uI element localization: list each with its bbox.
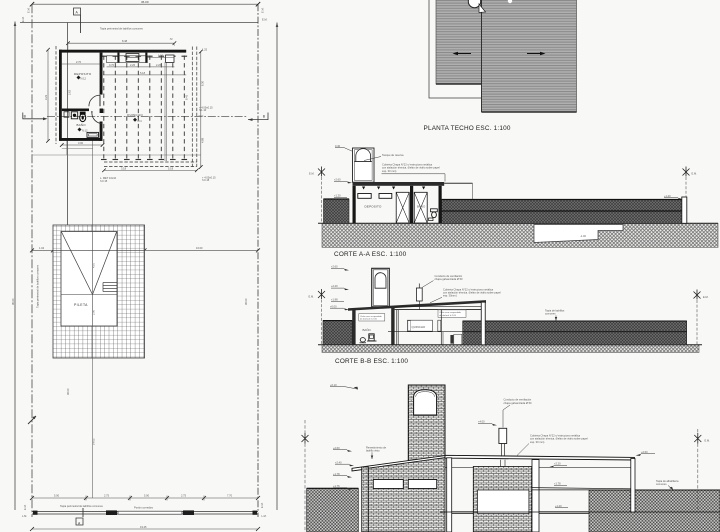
svg-text:E.M.: E.M. bbox=[692, 172, 698, 176]
svg-text:QUINCHO: QUINCHO bbox=[127, 113, 143, 117]
svg-text:Cielo raso suspendido: Cielo raso suspendido bbox=[439, 311, 461, 314]
svg-text:esp. 30 mm): esp. 30 mm) bbox=[530, 440, 545, 444]
svg-text:Portón corredizo: Portón corredizo bbox=[134, 506, 154, 510]
svg-text:-1.40: -1.40 bbox=[580, 234, 586, 238]
svg-text:3.00: 3.00 bbox=[78, 141, 84, 145]
svg-text:2.26: 2.26 bbox=[156, 63, 162, 67]
svg-text:h:1.10: h:1.10 bbox=[199, 108, 207, 112]
svg-text:N:12: N:12 bbox=[81, 77, 87, 81]
svg-text:E.M.: E.M. bbox=[27, 7, 31, 13]
svg-text:L.M.: L.M. bbox=[262, 514, 267, 518]
svg-text:N:4: N:4 bbox=[138, 119, 143, 123]
svg-text:E.M.: E.M. bbox=[309, 295, 315, 299]
svg-text:PILETA: PILETA bbox=[74, 303, 88, 307]
svg-text:4.10: 4.10 bbox=[92, 262, 96, 268]
svg-text:CORTE A-A ESC. 1:100: CORTE A-A ESC. 1:100 bbox=[334, 251, 407, 258]
svg-text:6.30: 6.30 bbox=[201, 80, 205, 86]
svg-text:esp. 30mm): esp. 30mm) bbox=[443, 294, 457, 298]
svg-text:Tapia perimetral de ladrillos: Tapia perimetral de ladrillos comunes bbox=[100, 27, 144, 31]
svg-text:3.23: 3.23 bbox=[44, 94, 48, 100]
svg-text:+2.60: +2.60 bbox=[334, 178, 341, 182]
svg-text:2.62: 2.62 bbox=[68, 89, 72, 95]
svg-text:+2.40: +2.40 bbox=[335, 460, 342, 464]
svg-text:Tapia perimetral de ladrillos: Tapia perimetral de ladrillos comunes bbox=[60, 504, 104, 508]
svg-text:0.40: 0.40 bbox=[335, 144, 341, 148]
svg-text:E.M.: E.M. bbox=[705, 439, 711, 443]
svg-text:E.M.: E.M. bbox=[260, 502, 264, 508]
svg-text:DEPOSITO: DEPOSITO bbox=[74, 72, 92, 76]
svg-text:+1.20: +1.20 bbox=[664, 194, 671, 198]
svg-text:1.00: 1.00 bbox=[158, 53, 164, 57]
svg-text:E.M.: E.M. bbox=[23, 504, 27, 510]
svg-text:Tanque de reserva: Tanque de reserva bbox=[382, 153, 404, 157]
svg-text:+1.78: +1.78 bbox=[554, 482, 561, 486]
svg-text:BAÑO: BAÑO bbox=[417, 204, 426, 209]
svg-text:+2.60: +2.60 bbox=[333, 446, 340, 450]
svg-text:36.00: 36.00 bbox=[141, 0, 149, 4]
svg-text:+2.60: +2.60 bbox=[641, 450, 648, 454]
svg-text:chapa galvanizada Ø 50: chapa galvanizada Ø 50 bbox=[435, 277, 464, 281]
svg-text:chapa galvanizada Ø 50: chapa galvanizada Ø 50 bbox=[504, 401, 533, 405]
svg-text:14.05: 14.05 bbox=[92, 438, 96, 445]
svg-text:.72: .72 bbox=[169, 37, 173, 41]
svg-text:de durlock h:2.05: de durlock h:2.05 bbox=[360, 318, 378, 321]
svg-text:comunes: comunes bbox=[656, 483, 667, 486]
svg-text:4.88: 4.88 bbox=[201, 137, 205, 143]
svg-text:5.00: 5.00 bbox=[54, 494, 60, 498]
svg-text:E.M.: E.M. bbox=[703, 295, 709, 299]
svg-text:E.M.: E.M. bbox=[261, 7, 265, 13]
svg-text:7.70: 7.70 bbox=[227, 494, 233, 498]
svg-text:2.75: 2.75 bbox=[104, 494, 110, 498]
svg-text:esp. 30 mm): esp. 30 mm) bbox=[382, 169, 397, 173]
svg-text:+2.60: +2.60 bbox=[331, 265, 338, 269]
svg-text:CORTE B-B ESC. 1:100: CORTE B-B ESC. 1:100 bbox=[335, 358, 408, 365]
svg-text:+1.76: +1.76 bbox=[333, 484, 340, 488]
svg-text:5.18: 5.18 bbox=[140, 71, 146, 75]
svg-text:ladrillo visto: ladrillo visto bbox=[366, 449, 380, 453]
svg-text:2.75: 2.75 bbox=[181, 494, 187, 498]
svg-text:QUINCHO: QUINCHO bbox=[412, 325, 426, 329]
svg-text:E.M.: E.M. bbox=[262, 18, 268, 22]
svg-text:DEPOSITO: DEPOSITO bbox=[365, 205, 383, 209]
svg-text:2.00: 2.00 bbox=[92, 309, 96, 315]
svg-text:+1.20: +1.20 bbox=[555, 504, 562, 508]
svg-text:L.M.: L.M. bbox=[22, 514, 27, 518]
svg-text:1.04: 1.04 bbox=[39, 246, 45, 250]
svg-text:5.00: 5.00 bbox=[144, 494, 150, 498]
svg-text:+1.78: +1.78 bbox=[333, 472, 340, 476]
svg-text:0.70: 0.70 bbox=[109, 63, 115, 67]
svg-text:+0.00: +0.00 bbox=[330, 304, 337, 308]
svg-text:Cielo raso suspendido: Cielo raso suspendido bbox=[360, 315, 382, 318]
svg-text:+1.20: +1.20 bbox=[334, 194, 341, 198]
svg-text:E.M.: E.M. bbox=[21, 16, 25, 22]
svg-text:+6.10: +6.10 bbox=[330, 383, 337, 387]
svg-text:36.00: 36.00 bbox=[11, 298, 15, 305]
svg-text:5.18: 5.18 bbox=[168, 166, 174, 170]
svg-text:N:12: N:12 bbox=[82, 129, 88, 133]
svg-text:+2.20: +2.20 bbox=[554, 462, 561, 466]
svg-text:de durlock h:2.05: de durlock h:2.05 bbox=[439, 314, 457, 317]
svg-text:+2.20: +2.20 bbox=[331, 284, 338, 288]
svg-text:1.25: 1.25 bbox=[202, 48, 208, 52]
svg-text:16.00: 16.00 bbox=[196, 246, 203, 250]
svg-text:BAÑO: BAÑO bbox=[77, 122, 87, 127]
svg-text:comunes: comunes bbox=[545, 313, 556, 316]
svg-text:Tapia perimetral de ladrillos: Tapia perimetral de ladrillos comunes bbox=[36, 264, 40, 308]
svg-text:BAÑO: BAÑO bbox=[363, 327, 372, 332]
svg-text:36.00: 36.00 bbox=[244, 298, 248, 305]
svg-text:19.25: 19.25 bbox=[140, 525, 147, 529]
svg-text:2.70: 2.70 bbox=[76, 60, 82, 64]
svg-text:+1.98: +1.98 bbox=[331, 298, 338, 302]
svg-text:2.26: 2.26 bbox=[130, 63, 136, 67]
svg-text:h:0.15: h:0.15 bbox=[202, 178, 210, 182]
svg-text:PLANTA TECHO ESC. 1:100: PLANTA TECHO ESC. 1:100 bbox=[424, 125, 511, 132]
svg-text:+4.00: +4.00 bbox=[478, 420, 485, 424]
svg-text:8.48: 8.48 bbox=[122, 39, 128, 43]
svg-text:36.00: 36.00 bbox=[66, 388, 70, 395]
svg-text:8.41: 8.41 bbox=[185, 94, 189, 100]
svg-text:3.18: 3.18 bbox=[121, 166, 127, 170]
svg-text:h:0.15: h:0.15 bbox=[100, 179, 108, 183]
svg-text:E.M.: E.M. bbox=[309, 172, 315, 176]
